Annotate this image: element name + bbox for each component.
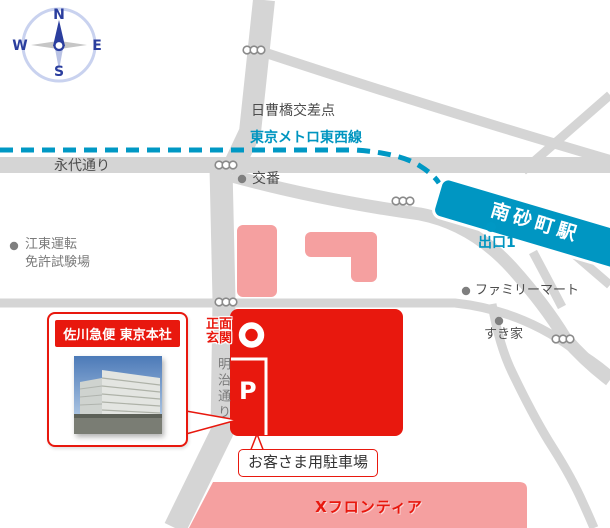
- compass-hub: [55, 41, 64, 50]
- license-center-label-line1: 江東運転: [25, 238, 77, 253]
- exit1-label: 出口1: [478, 235, 516, 251]
- hq-building-photo: [74, 356, 162, 434]
- main-entrance-line1: 正面: [204, 318, 234, 332]
- compass-south-label: S: [54, 64, 64, 80]
- parking-mark: P: [239, 378, 257, 406]
- koban-dot: [238, 175, 246, 183]
- x-frontier-label: Xフロンティア: [210, 499, 528, 516]
- license-center-dot: [10, 242, 18, 250]
- sukiya-label: すき家: [484, 328, 523, 343]
- hq-callout: 佐川急便 東京本社: [47, 312, 188, 447]
- building-pink-1: [237, 225, 277, 297]
- customer-parking-callout: お客さま用駐車場: [238, 449, 378, 477]
- intersection-label: 日曹橋交差点: [251, 103, 335, 119]
- familymart-dot: [462, 287, 470, 295]
- main-entrance-line2: 玄関: [204, 332, 234, 346]
- compass-east-label: E: [92, 38, 102, 54]
- metro-line-label: 東京メトロ東西線: [250, 130, 362, 146]
- eitai-dori-label: 永代通り: [54, 158, 110, 174]
- hq-callout-title: 佐川急便 東京本社: [55, 320, 180, 347]
- access-map: N W E S 日曹橋交差点 東京メトロ東西線 永代通り 交番 南砂町駅 出口1…: [0, 0, 610, 528]
- license-center-label-line2: 免許試験場: [25, 256, 90, 271]
- sukiya-dot: [495, 317, 503, 325]
- compass-north-label: N: [53, 7, 65, 23]
- main-entrance-label: 正面 玄関: [204, 318, 234, 346]
- meiji-dori-label: 明治通り: [214, 357, 229, 421]
- exit1-dot: [486, 222, 496, 232]
- building-pink-2b: [351, 232, 377, 282]
- familymart-label: ファミリーマート: [475, 284, 579, 299]
- compass: N W E S: [12, 7, 102, 81]
- compass-west-label: W: [12, 38, 27, 54]
- koban-label: 交番: [252, 171, 280, 187]
